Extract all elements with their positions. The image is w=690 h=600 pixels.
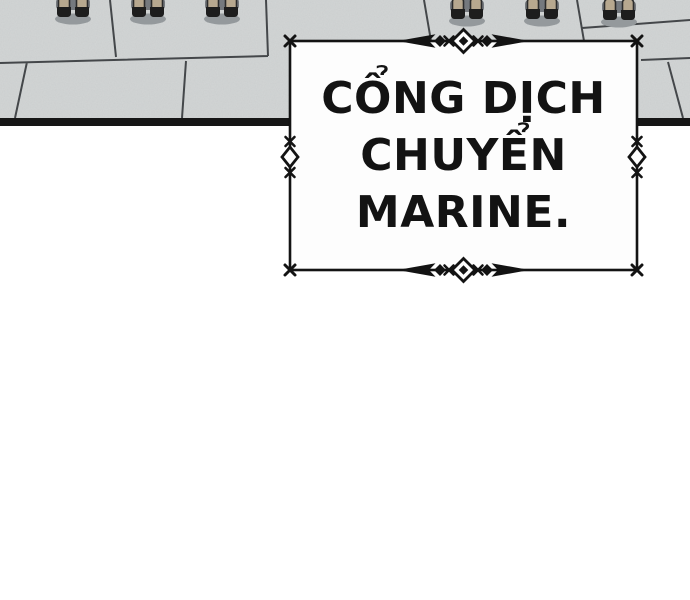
comic-panel: CỔNG DỊCH CHUYỂN MARINE. (0, 0, 690, 600)
caption-box: CỔNG DỊCH CHUYỂN MARINE. (290, 41, 637, 270)
caption-line-3: MARINE. (356, 184, 571, 241)
caption-line-2: CHUYỂN (360, 127, 567, 184)
caption-line-1: CỔNG DỊCH (321, 70, 605, 127)
